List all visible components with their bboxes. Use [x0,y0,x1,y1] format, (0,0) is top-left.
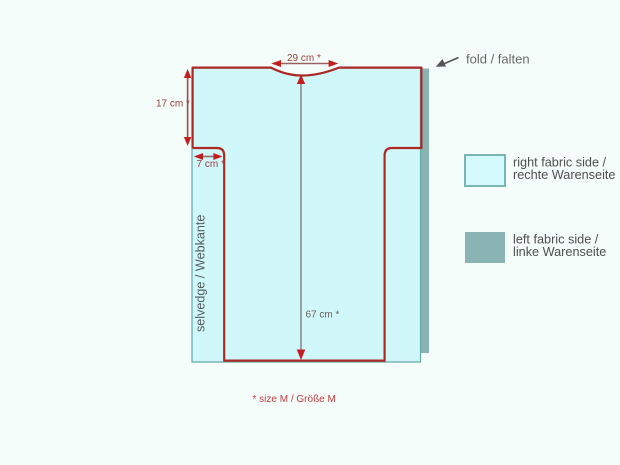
svg-text:67 cm *: 67 cm * [306,310,340,321]
svg-text:7 cm *: 7 cm * [197,159,225,170]
svg-text:selvedge / Webkante: selvedge / Webkante [194,215,208,332]
svg-text:17 cm *: 17 cm * [156,99,190,110]
svg-text:29 cm *: 29 cm * [287,53,321,64]
svg-text:rechte Warenseite: rechte Warenseite [513,168,616,182]
svg-text:linke Warenseite: linke Warenseite [513,245,606,259]
svg-text:fold / falten: fold / falten [466,52,530,67]
svg-text:* size M / Größe M: * size M / Größe M [253,394,336,405]
